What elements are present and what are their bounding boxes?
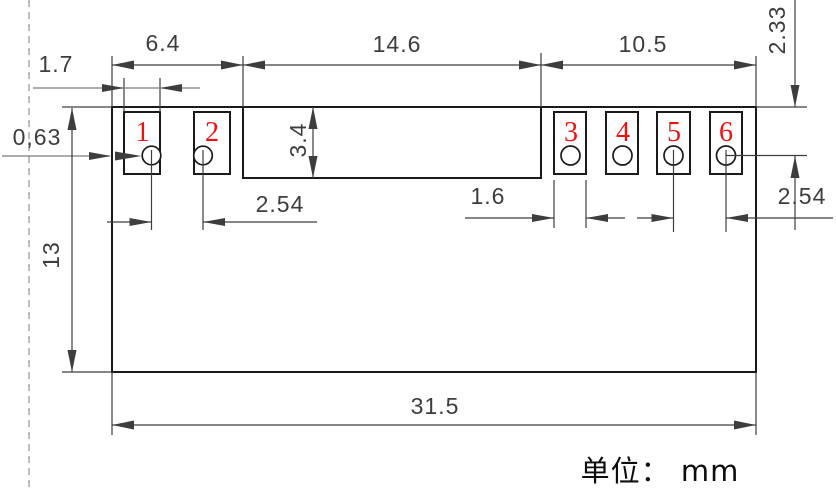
arrowhead [68,350,77,372]
arrowhead [791,85,800,107]
arrowhead [115,152,142,161]
arrowhead [160,84,182,92]
arrowhead [130,218,152,226]
dim-pads-right-span-label: 10.5 [619,31,668,57]
arrowhead [726,214,748,222]
dim-pitch-right-label: 2.54 [778,183,827,209]
dim-pitch-left-label: 2.54 [256,191,305,217]
pad-3-number: 3 [564,117,578,148]
pad-2-number: 2 [205,117,219,148]
pad-1-number: 1 [136,117,150,148]
arrowhead [203,218,225,226]
dim-middle-span-label: 14.6 [373,31,422,57]
arrowhead [221,61,243,70]
dim-hole-offset-right: 2.33 [726,0,807,230]
arrowhead [532,214,554,222]
dim-notch-height-label: 3.4 [285,123,311,158]
arrowhead [791,156,800,178]
dim-pad-width-left: 1.7 [33,51,200,112]
arrowhead [89,152,111,160]
technical-drawing: 1 2 3 4 5 6 6.4 14.6 10.5 1.7 0,63 [0,0,836,490]
pad-3-hole [561,146,580,165]
dim-body-width: 31.5 [112,372,756,435]
arrowhead [112,421,134,430]
dim-hole-offset-right-label: 2.33 [764,6,790,55]
pad-4-number: 4 [616,117,630,148]
pad-6-number: 6 [719,117,733,148]
arrowhead [586,214,608,222]
component-outline-group: 1 2 3 4 5 6 [112,107,756,372]
arrowhead [102,84,124,92]
arrowhead [734,61,756,70]
arrowhead [112,61,134,70]
arrowhead [652,214,674,222]
pad-5-number: 5 [667,117,681,148]
dim-hole-edge-offset-label: 0,63 [13,124,62,150]
arrowhead [243,61,265,70]
unit-note-label: 单位： mm [581,454,740,488]
dim-pad-width-right: 1.6 [465,180,625,228]
arrowhead [309,156,318,178]
technical-drawing-page: 1 2 3 4 5 6 6.4 14.6 10.5 1.7 0,63 [0,0,836,490]
dim-pads-left-span-label: 6.4 [146,30,181,56]
dim-notch-height: 3.4 [285,107,318,178]
dim-pitch-left: 2.54 [107,150,317,230]
arrowhead [519,61,541,70]
arrowhead [68,108,77,130]
dim-top-row: 6.4 14.6 10.5 [112,30,756,107]
arrowhead [541,61,563,70]
dim-body-width-label: 31.5 [411,393,460,419]
arrowhead [734,421,756,430]
dim-pad-width-left-label: 1.7 [39,51,74,77]
pad-4-hole [613,146,632,165]
dim-pad-width-right-label: 1.6 [471,183,506,209]
dim-body-height-label: 13 [38,241,64,269]
